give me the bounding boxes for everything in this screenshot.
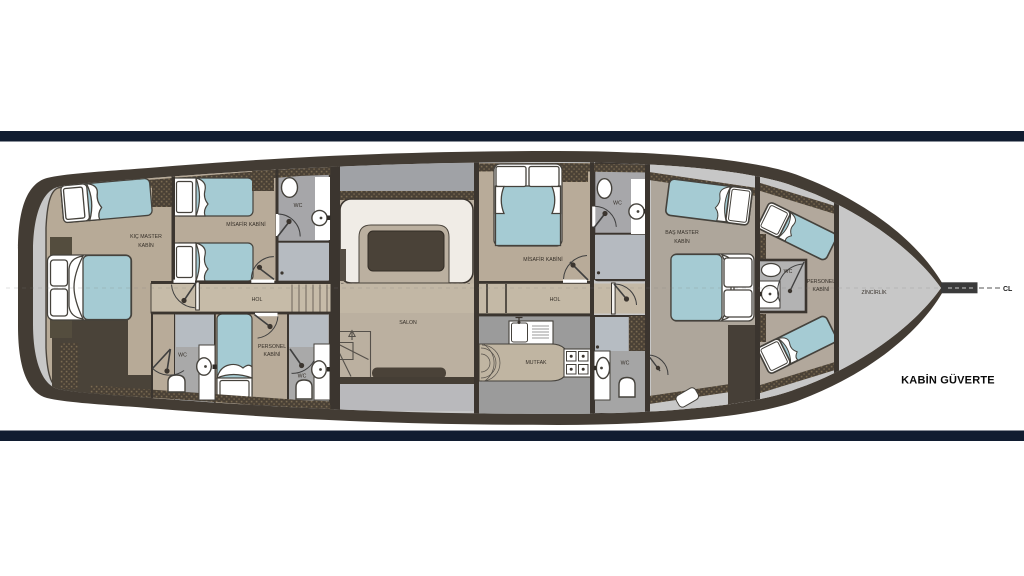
svg-text:WC: WC xyxy=(298,374,307,380)
svg-text:WC: WC xyxy=(784,269,793,275)
svg-text:WC: WC xyxy=(178,353,187,359)
svg-text:WC: WC xyxy=(613,201,622,207)
svg-text:ZİNCİRLİK: ZİNCİRLİK xyxy=(861,289,887,296)
svg-text:KIÇ MASTER: KIÇ MASTER xyxy=(130,234,162,240)
svg-text:MİSAFİR KABİNİ: MİSAFİR KABİNİ xyxy=(226,221,266,228)
svg-text:MİSAFİR KABİNİ: MİSAFİR KABİNİ xyxy=(523,256,563,263)
svg-text:KABİN: KABİN xyxy=(138,242,154,249)
svg-text:KABİNİ: KABİNİ xyxy=(263,351,280,358)
svg-text:PERSONEL: PERSONEL xyxy=(258,344,286,350)
svg-text:KABİN: KABİN xyxy=(674,238,690,245)
svg-text:WC: WC xyxy=(294,203,303,209)
svg-text:PERSONEL: PERSONEL xyxy=(807,279,835,285)
svg-text:MUTFAK: MUTFAK xyxy=(525,360,547,366)
svg-text:WC: WC xyxy=(621,361,630,367)
svg-text:CL: CL xyxy=(1003,286,1013,293)
svg-text:SALON: SALON xyxy=(399,320,417,326)
svg-text:HOL: HOL xyxy=(550,297,561,303)
svg-text:HOL: HOL xyxy=(252,297,263,303)
svg-text:BAŞ MASTER: BAŞ MASTER xyxy=(665,230,699,236)
svg-text:KABİN GÜVERTE: KABİN GÜVERTE xyxy=(901,374,995,387)
svg-text:KABİNİ: KABİNİ xyxy=(812,286,829,293)
